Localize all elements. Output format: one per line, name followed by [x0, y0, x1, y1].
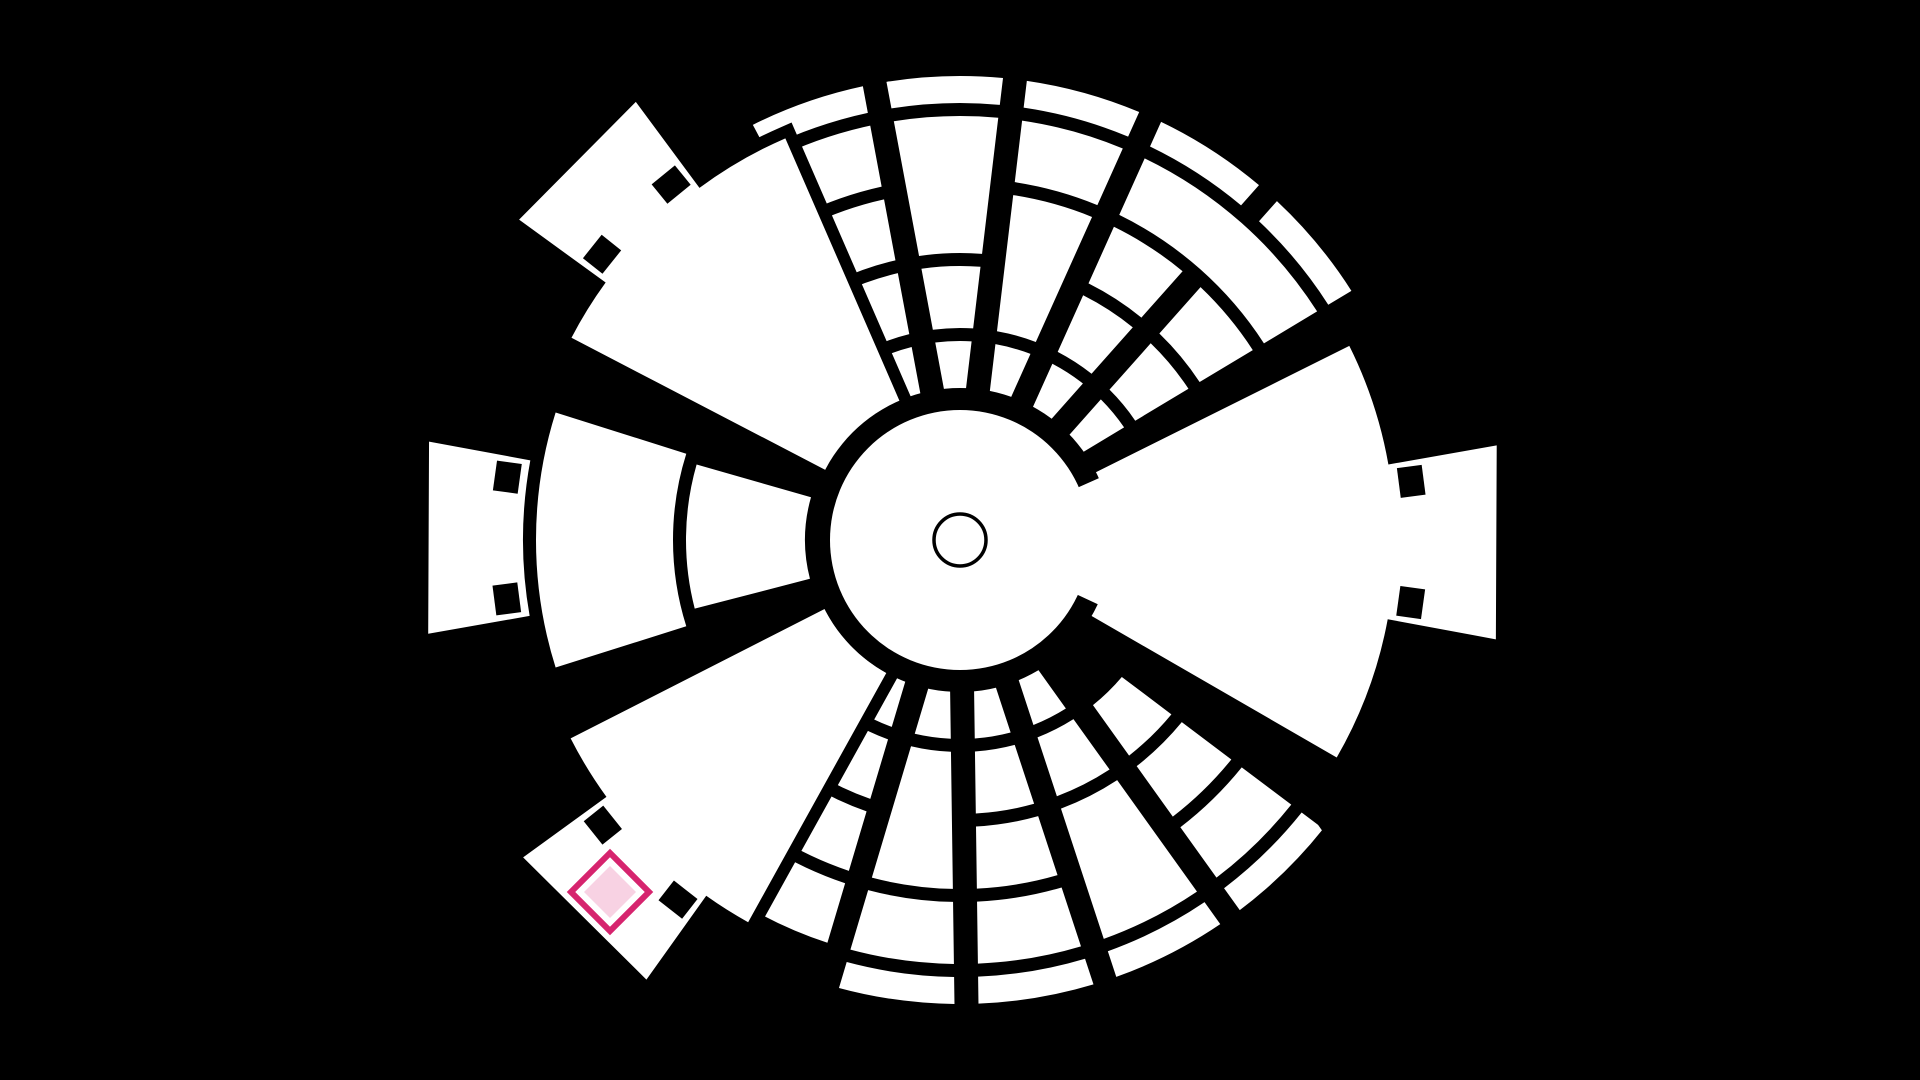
grid-south-room-cell[interactable] [976, 816, 1058, 888]
grid-north-room-cell[interactable] [935, 341, 971, 391]
grid-north-room-cell[interactable] [1015, 121, 1123, 206]
west-wing-segment[interactable] [536, 413, 686, 668]
grid-south-room-cell[interactable] [974, 686, 1011, 739]
door-notch [493, 461, 522, 494]
grid-north-room-cell[interactable] [990, 344, 1031, 399]
grid-north-room-cell[interactable] [1110, 343, 1189, 420]
center-token-circle[interactable] [934, 514, 986, 566]
door-notch [1397, 465, 1426, 498]
grid-north-room-cell[interactable] [886, 76, 1003, 108]
grid-south-room-cell[interactable] [975, 745, 1034, 814]
map-viewport [0, 0, 1920, 1080]
polar-map [0, 0, 1920, 1080]
grid-south-room-cell[interactable] [839, 962, 955, 1004]
grid-south-room-cell[interactable] [978, 959, 1093, 1004]
grid-north-room-cell[interactable] [1058, 295, 1133, 374]
grid-north-room-cell[interactable] [894, 116, 998, 256]
door-notch [492, 582, 521, 615]
grid-south-room-cell[interactable] [1093, 677, 1171, 756]
grid-south-room-cell[interactable] [872, 746, 953, 889]
grid-south-room-cell[interactable] [1038, 719, 1110, 796]
grid-south-room-cell[interactable] [977, 887, 1081, 963]
grid-south-room-cell[interactable] [915, 687, 951, 739]
grid-north-room-cell[interactable] [921, 266, 980, 330]
west-wing-segment[interactable] [686, 464, 811, 608]
door-notch [1396, 586, 1425, 619]
grid-south-room-cell[interactable] [850, 890, 954, 964]
